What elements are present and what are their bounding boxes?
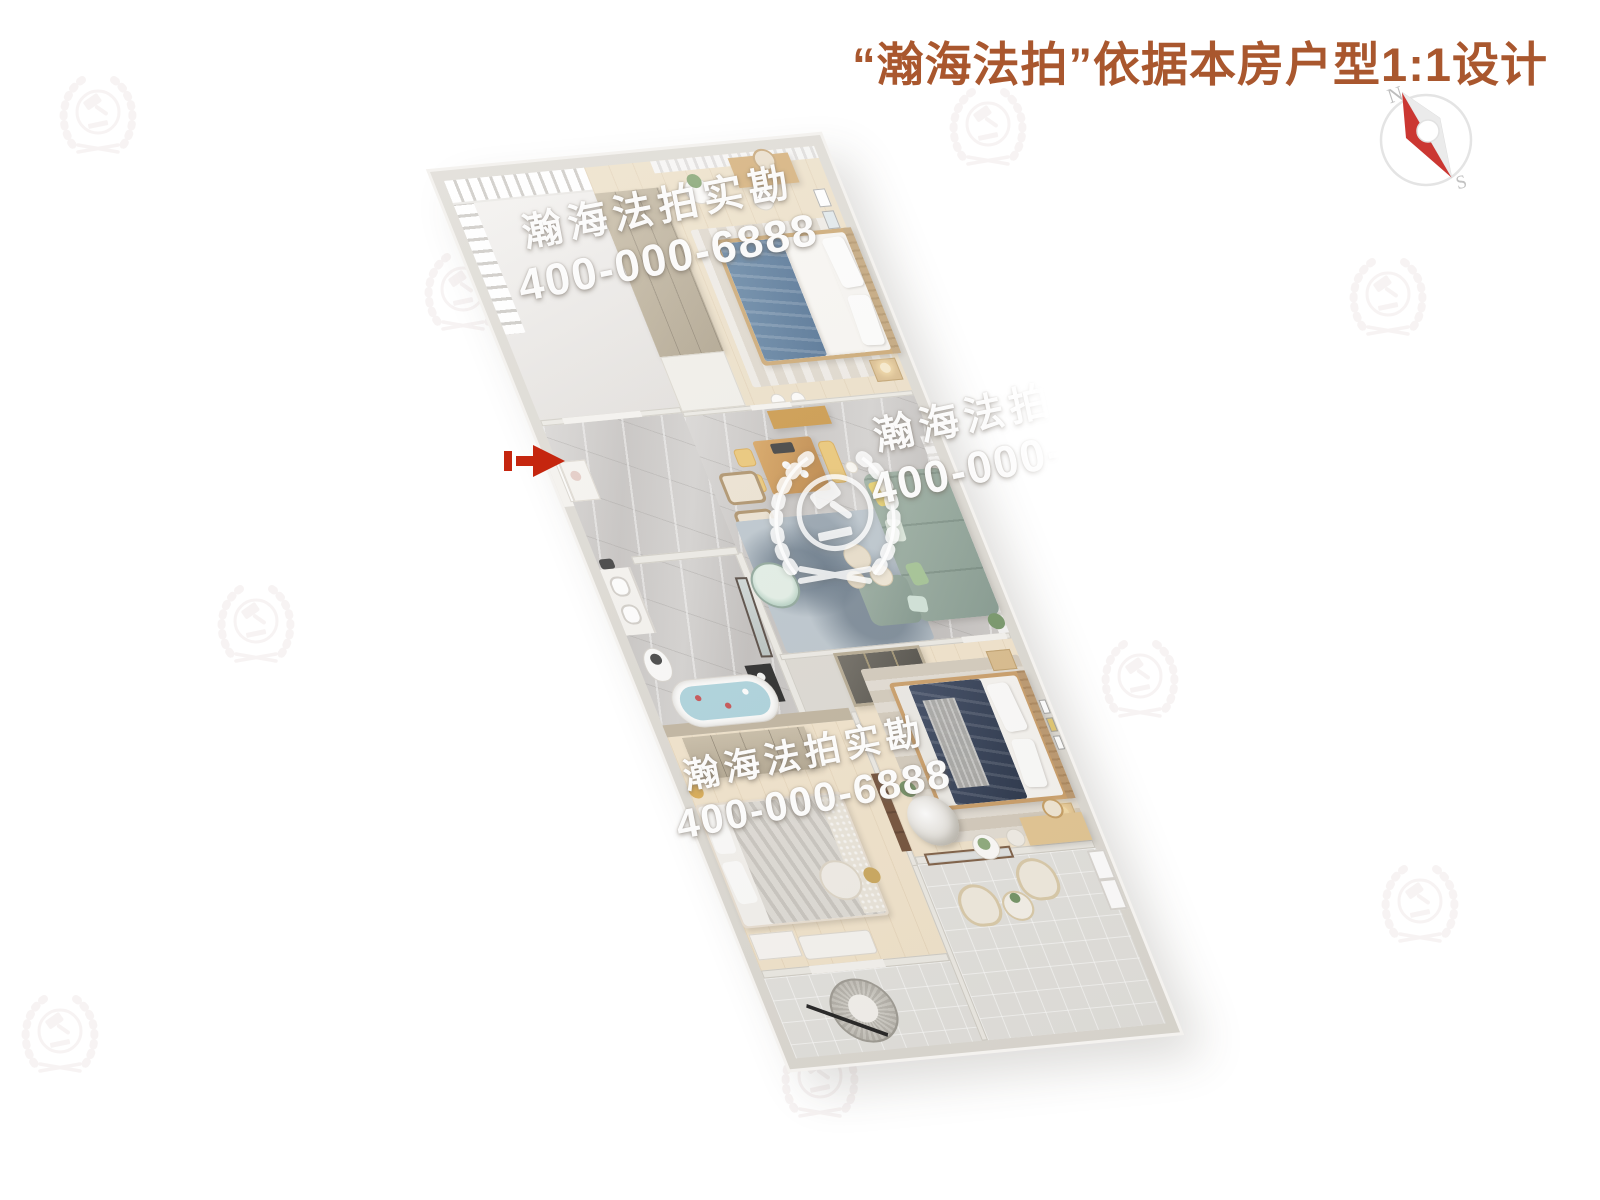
entrance-arrow-icon — [503, 443, 569, 479]
laurel-wreath-gavel-icon — [1090, 630, 1190, 740]
compass-south-label: S — [1454, 171, 1470, 194]
laurel-wreath-gavel-icon — [10, 985, 110, 1095]
laurel-wreath-gavel-icon — [746, 434, 924, 622]
compass-rose-icon: N S — [1366, 76, 1486, 202]
laurel-wreath-gavel-icon — [48, 66, 148, 176]
laurel-wreath-gavel-icon — [206, 575, 306, 685]
laurel-wreath-gavel-icon — [1370, 855, 1470, 965]
compass-hub — [1417, 120, 1439, 142]
laurel-wreath-gavel-icon — [1338, 248, 1438, 358]
